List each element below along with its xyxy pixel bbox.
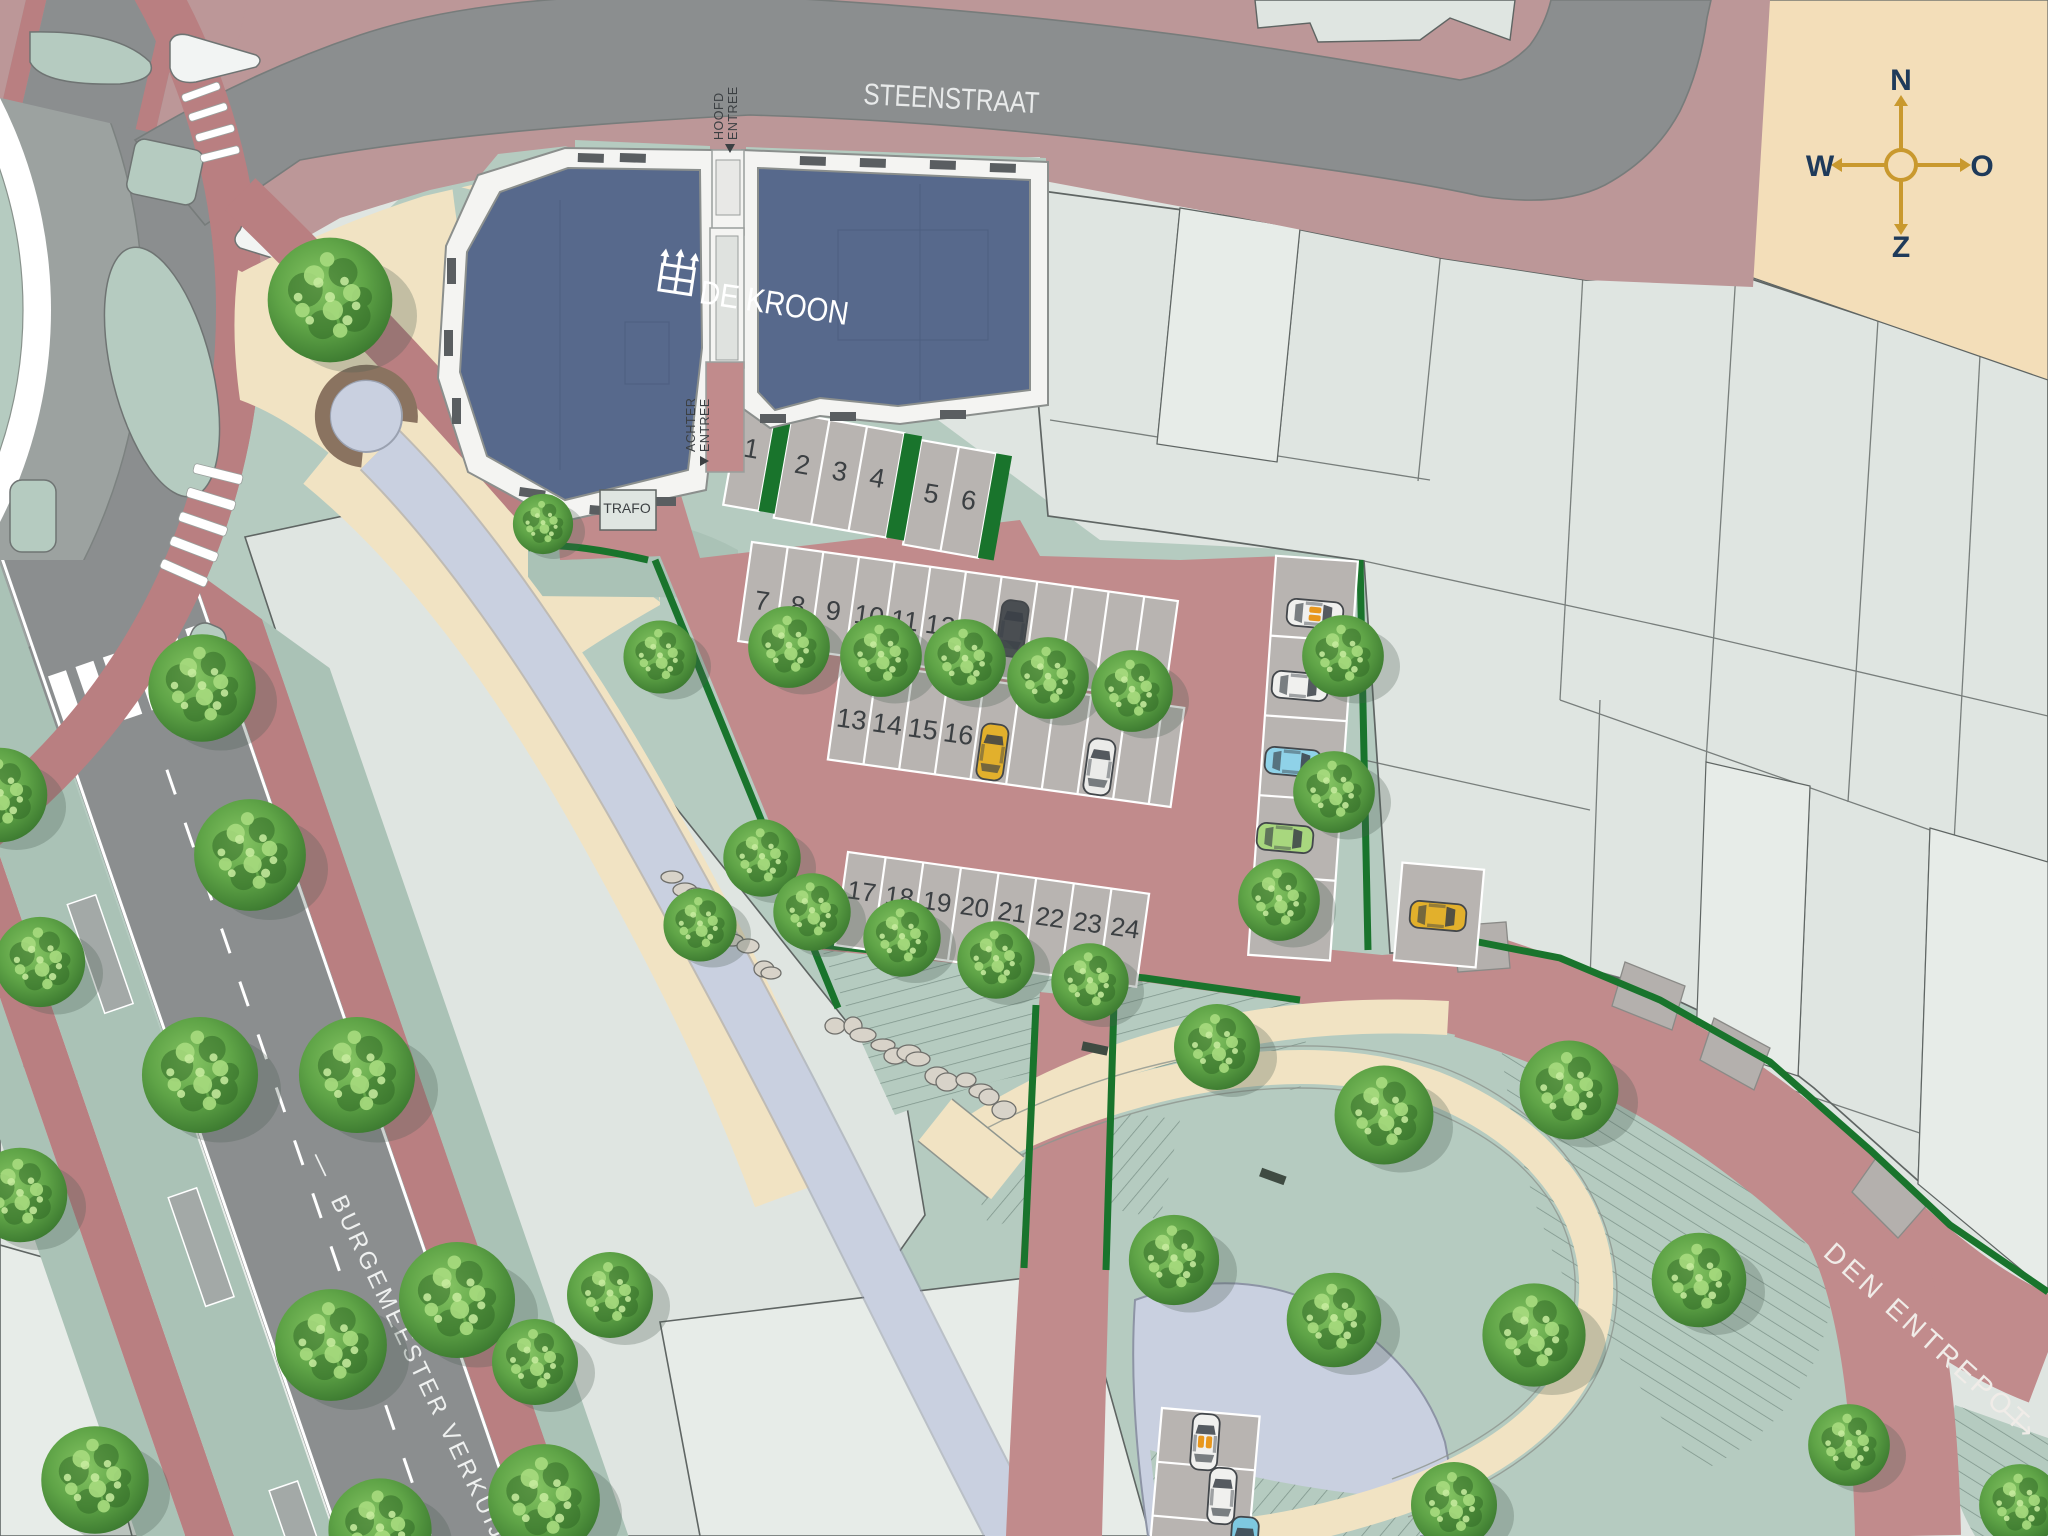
svg-text:ENTREE: ENTREE (698, 398, 712, 452)
svg-text:13: 13 (835, 702, 869, 736)
svg-text:14: 14 (870, 707, 904, 741)
svg-text:W: W (1806, 150, 1835, 183)
svg-text:ENTREE: ENTREE (726, 86, 740, 140)
svg-text:Z: Z (1892, 231, 1910, 264)
svg-text:TRAFO: TRAFO (603, 500, 651, 516)
svg-text:23: 23 (1071, 906, 1104, 940)
svg-text:ACHTER: ACHTER (684, 398, 698, 452)
svg-text:24: 24 (1109, 911, 1142, 945)
svg-text:HOOFD: HOOFD (712, 92, 726, 140)
svg-text:15: 15 (906, 712, 940, 746)
svg-text:O: O (1970, 150, 1993, 183)
svg-text:N: N (1890, 64, 1912, 97)
svg-text:16: 16 (942, 717, 976, 751)
svg-text:20: 20 (958, 890, 991, 924)
svg-text:22: 22 (1034, 901, 1067, 935)
